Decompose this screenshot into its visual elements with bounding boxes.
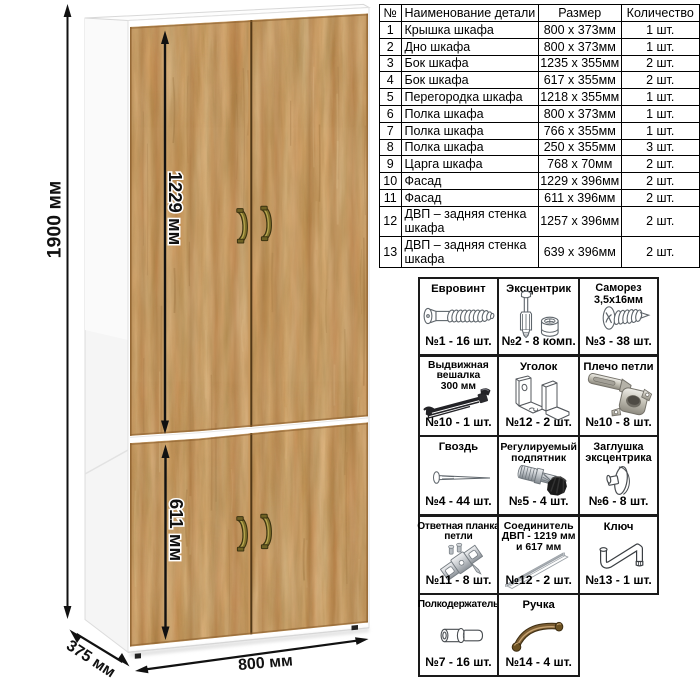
svg-text:800 мм: 800 мм	[237, 652, 293, 674]
svg-text:1229 мм: 1229 мм	[165, 172, 186, 246]
svg-text:1900 мм: 1900 мм	[44, 181, 66, 259]
svg-text:611 мм: 611 мм	[166, 499, 187, 561]
